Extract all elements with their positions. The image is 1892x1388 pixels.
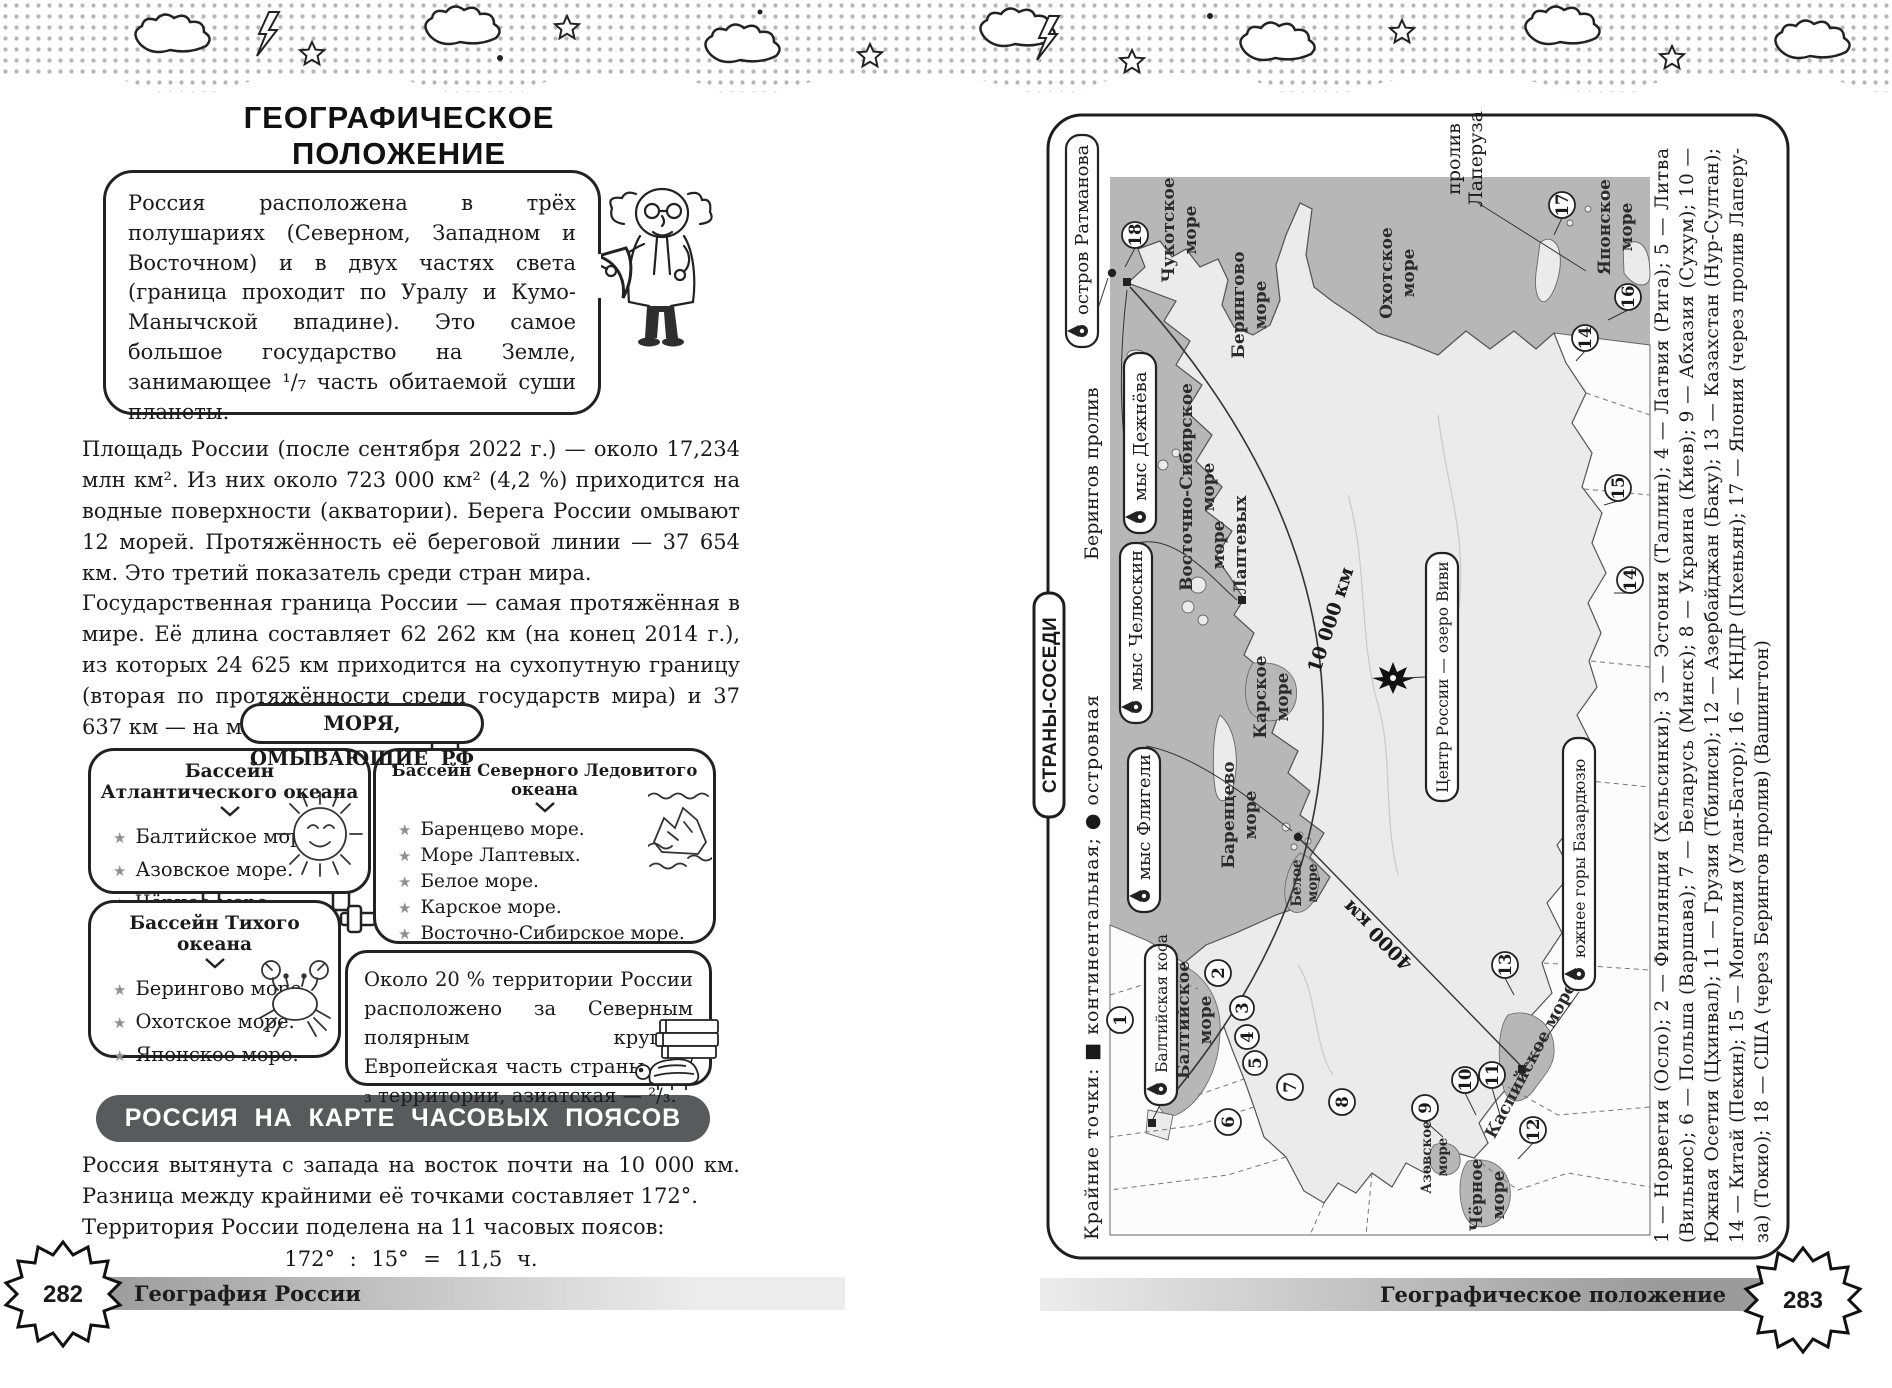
svg-text:остров Ратманова: остров Ратманова <box>1072 144 1093 315</box>
svg-text:13: 13 <box>1496 954 1515 977</box>
svg-text:1: 1 <box>1111 1014 1130 1025</box>
svg-text:СТРАНЫ-СОСЕДИ: СТРАНЫ-СОСЕДИ <box>1040 617 1061 793</box>
chevron-down-icon <box>219 805 241 817</box>
svg-text:Восточно-Сибирское: Восточно-Сибирское <box>1177 383 1197 591</box>
svg-text:южнее горы Базардюзю: южнее горы Базардюзю <box>1571 759 1589 958</box>
svg-text:Карское: Карское <box>1251 655 1271 738</box>
svg-text:(Вильнюс); 6 — Польша (Варшава: (Вильнюс); 6 — Польша (Варшава); 7 — Бел… <box>1677 148 1698 1243</box>
star-bullet-icon: ★ <box>113 829 126 847</box>
svg-text:Берингово: Берингово <box>1229 251 1249 358</box>
svg-text:Лаперуза: Лаперуза <box>1465 111 1487 207</box>
page-number: 282 <box>43 1281 83 1308</box>
svg-text:Охотское: Охотское <box>1377 227 1397 319</box>
star-bullet-icon: ★ <box>113 862 126 880</box>
svg-text:1 — Норвегия (Осло); 2 — Финля: 1 — Норвегия (Осло); 2 — Финляндия (Хель… <box>1652 148 1673 1243</box>
page-number: 283 <box>1783 1287 1823 1314</box>
svg-text:мыс Дежнёва: мыс Дежнёва <box>1130 371 1151 501</box>
svg-text:море: море <box>1273 672 1293 721</box>
pin-bazarduzu: южнее горы Базардюзю <box>1563 738 1595 990</box>
svg-text:18: 18 <box>1126 224 1145 247</box>
svg-text:море: море <box>1241 790 1261 839</box>
speech-bubble-tail <box>596 246 638 302</box>
star-bullet-icon: ★ <box>113 981 126 999</box>
svg-text:Чёрное: Чёрное <box>1467 1158 1487 1231</box>
svg-text:9: 9 <box>1416 1102 1435 1113</box>
footer-right-label: Географическое положение <box>1380 1282 1726 1307</box>
svg-text:12: 12 <box>1524 1119 1543 1142</box>
svg-text:Чукотское: Чукотское <box>1159 177 1179 283</box>
star-bullet-icon: ★ <box>398 925 411 943</box>
svg-text:10: 10 <box>1456 1069 1475 1092</box>
timezone-paragraph-2: Территория России поделена на 11 часовых… <box>82 1212 740 1243</box>
pin-cape-dezhnev: мыс Дежнёва <box>1124 353 1156 533</box>
pin-cape-chelyuskin: мыс Челюскин <box>1120 543 1152 723</box>
svg-text:море: море <box>1489 1170 1509 1219</box>
intro-speech-bubble: Россия расположена в трёх полушариях (Се… <box>103 170 601 415</box>
star-bullet-icon: ★ <box>113 1014 126 1032</box>
svg-text:Японское: Японское <box>1595 179 1615 275</box>
chevron-down-icon <box>204 957 226 969</box>
svg-text:море: море <box>1435 1138 1451 1177</box>
sidebar-tab-neighbors: СТРАНЫ-СОСЕДИ <box>1034 593 1064 817</box>
book-spread: ГЕОГРАФИЧЕСКОЕ ПОЛОЖЕНИЕ Россия располож… <box>0 0 1892 1388</box>
svg-text:Белое: Белое <box>1289 859 1305 906</box>
svg-text:5: 5 <box>1246 1057 1265 1068</box>
crab-doodle <box>252 940 338 1052</box>
svg-text:Лаптевых: Лаптевых <box>1231 495 1251 595</box>
star-bullet-icon: ★ <box>398 899 411 917</box>
svg-text:мыс Флигели: мыс Флигели <box>1134 754 1155 880</box>
svg-text:8: 8 <box>1333 1096 1352 1107</box>
svg-text:Азовское: Азовское <box>1419 1120 1435 1194</box>
svg-text:11: 11 <box>1483 1064 1502 1087</box>
laperouse-strait-label: пролив <box>1443 123 1465 195</box>
star-bullet-icon: ★ <box>398 821 411 839</box>
map-legend: Крайние точки: ■ континентальная; ● остр… <box>1081 695 1103 1240</box>
svg-text:море: море <box>1399 248 1419 297</box>
turtle-books-doodle <box>630 1016 730 1094</box>
svg-text:14: 14 <box>1621 569 1640 592</box>
svg-text:Центр России — озеро Виви: Центр России — озеро Виви <box>1434 561 1452 793</box>
svg-text:17: 17 <box>1553 194 1572 217</box>
svg-text:3: 3 <box>1233 1002 1252 1013</box>
svg-text:6: 6 <box>1219 1116 1238 1127</box>
list-item: ★Восточно-Сибирское море. <box>398 921 713 947</box>
svg-text:14: 14 <box>1576 327 1595 350</box>
svg-text:море: море <box>1305 864 1321 903</box>
pin-baltic-spit: Балтийская коса <box>1145 934 1177 1105</box>
svg-text:за) (Токио); 18 — США (через Б: за) (Токио); 18 — США (через Берингов пр… <box>1752 640 1773 1243</box>
svg-text:море: море <box>1196 995 1216 1044</box>
iceberg-doodle <box>648 788 712 888</box>
svg-text:7: 7 <box>1281 1081 1300 1092</box>
svg-text:море: море <box>1209 520 1229 569</box>
bering-strait-label: Берингов пролив <box>1081 387 1103 560</box>
neighbors-map-panel: Чукотское море Берингово море Восточно-С… <box>1028 108 1790 1308</box>
svg-text:14 — Китай (Пекин); 15 — Монго: 14 — Китай (Пекин); 15 — Монголия (Улан-… <box>1727 148 1748 1243</box>
svg-text:море: море <box>1251 280 1271 329</box>
svg-text:2: 2 <box>1209 967 1228 978</box>
star-bullet-icon: ★ <box>398 873 411 891</box>
svg-text:мыс Челюскин: мыс Челюскин <box>1126 550 1147 691</box>
svg-text:Балтийская коса: Балтийская коса <box>1153 934 1171 1073</box>
svg-text:Южная Осетия (Цхинвал); 11 — Г: Южная Осетия (Цхинвал); 11 — Грузия (Тби… <box>1702 148 1723 1243</box>
svg-text:море: море <box>1181 205 1201 254</box>
svg-text:15: 15 <box>1609 477 1628 500</box>
page-number-283-burst: 283 <box>1741 1238 1865 1362</box>
sun-doodle <box>272 782 368 884</box>
decorative-top-band <box>0 0 1892 92</box>
list-item: ★Карское море. <box>398 895 713 921</box>
page-title: ГЕОГРАФИЧЕСКОЕ ПОЛОЖЕНИЕ <box>178 100 620 142</box>
timezone-block: Россия вытянута с запада на восток почти… <box>82 1150 740 1275</box>
svg-text:море: море <box>1199 462 1219 511</box>
pin-ratmanov-island: остров Ратманова <box>1066 135 1098 347</box>
pin-cape-fligely: мыс Флигели <box>1128 748 1160 912</box>
timezone-paragraph-1: Россия вытянута с запада на восток почти… <box>82 1150 740 1212</box>
footer-left: География России <box>96 1277 845 1310</box>
star-bullet-icon: ★ <box>113 1047 126 1065</box>
paragraph-area: Площадь России (после сентября 2022 г.) … <box>82 434 740 589</box>
intro-text: Россия расположена в трёх полушариях (Се… <box>128 191 576 424</box>
svg-text:Баренцево: Баренцево <box>1219 761 1239 868</box>
chevron-down-icon <box>534 801 556 813</box>
page-number-282-burst: 282 <box>2 1233 124 1355</box>
label-center-of-russia: Центр России — озеро Виви <box>1426 553 1458 801</box>
timezone-formula: 172° : 15° = 11,5 ч. <box>82 1244 740 1275</box>
svg-text:16: 16 <box>1619 286 1638 309</box>
svg-text:море: море <box>1617 202 1637 251</box>
seas-diagram-title: МОРЯ, ОМЫВАЮЩИЕ РФ <box>240 703 484 744</box>
star-bullet-icon: ★ <box>398 847 411 865</box>
svg-text:4: 4 <box>1238 1031 1257 1042</box>
footer-left-label: География России <box>134 1281 361 1306</box>
footer-right: Географическое положение <box>1040 1278 1766 1311</box>
